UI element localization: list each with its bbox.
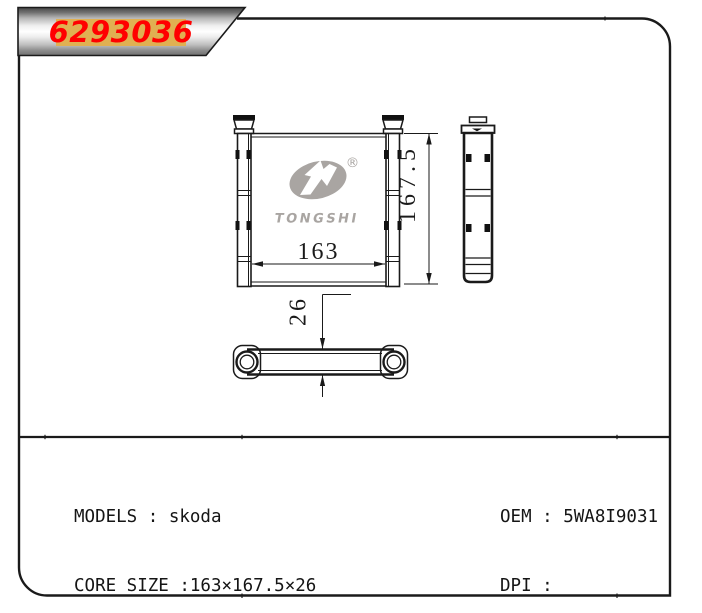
spec-line-core-size: CORE SIZE :163×167.5×26: [74, 575, 316, 598]
tongshi-logo: ® TONGSHI: [273, 155, 360, 226]
side-view: [462, 117, 495, 282]
dim-height-label: 167.5: [395, 144, 421, 223]
part-number-label: 6293036: [56, 19, 186, 46]
spec-line-oem: OEM : 5WA8I9031: [500, 506, 669, 529]
dim-height: 167.5: [395, 134, 438, 285]
logo-wordmark: TONGSHI: [273, 212, 360, 227]
dim-width-label: 163: [298, 239, 340, 265]
inlet-fitting-right: [382, 115, 404, 134]
spec-line-models: MODELS : skoda: [74, 506, 316, 529]
specs-right: OEM : 5WA8I9031 DPI : AVA : NISSENS : 70…: [500, 460, 669, 613]
dim-depth-label: 26: [286, 296, 312, 326]
catalog-page: ® TONGSHI 163 167.5: [0, 0, 702, 613]
spec-line-dpi: DPI :: [500, 575, 669, 598]
bottom-view: [234, 346, 408, 379]
front-tank-left: [236, 134, 252, 287]
dim-depth: 26: [286, 295, 352, 398]
specs-left: MODELS : skoda CORE SIZE :163×167.5×26 T…: [74, 460, 316, 613]
logo-registered-mark: ®: [346, 155, 360, 171]
dim-width: 163: [252, 239, 385, 267]
inlet-fitting-left: [233, 115, 255, 134]
